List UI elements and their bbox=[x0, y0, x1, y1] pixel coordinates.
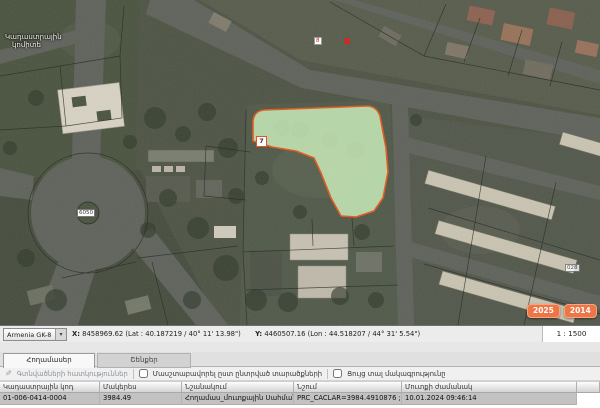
cadastre-map-app: Կադաստրային կոմիտե 7 8 6050 028 2025 201… bbox=[0, 0, 600, 408]
header-area[interactable]: Մակերես bbox=[100, 381, 182, 393]
show-labels-checkbox[interactable] bbox=[333, 369, 342, 378]
map-scale-input[interactable]: 1 : 1500 bbox=[542, 326, 600, 342]
imagery-year-buttons: 2025 2014 Այլ bbox=[527, 304, 600, 318]
projection-select-value: Armenia GK-8 bbox=[4, 331, 55, 339]
zoom-to-selected-label: Մասշտաբավորել ըստ ընտրված տարածքների bbox=[153, 370, 322, 378]
projection-select[interactable]: Armenia GK-8 ▾ bbox=[3, 328, 67, 341]
satellite-map-canvas bbox=[0, 0, 600, 325]
header-designation[interactable]: Նշանակում bbox=[182, 381, 294, 393]
map-watermark: Կադաստրային կոմիտե bbox=[5, 33, 62, 49]
grid-header-row: Կադաստրային կոդ Մակերես Նշանակում Նշում … bbox=[0, 381, 600, 393]
map-label-building-8: 8 bbox=[314, 37, 322, 45]
tab-buildings[interactable]: Շենքեր bbox=[97, 353, 191, 368]
found-properties-link[interactable]: Գտնվածների հատկություններ bbox=[17, 370, 128, 378]
chevron-down-icon: ▾ bbox=[55, 329, 66, 340]
header-note[interactable]: Նշում bbox=[294, 381, 402, 393]
cell-designation[interactable]: Հողամաս_մուտքային Սահման bbox=[182, 393, 294, 405]
x-coordinate-label: X: bbox=[72, 330, 80, 338]
watermark-line1: Կադաստրային bbox=[5, 33, 62, 41]
satellite-grain-texture bbox=[0, 0, 600, 325]
header-filler bbox=[577, 381, 600, 393]
parcel-number-badge[interactable]: 7 bbox=[256, 136, 267, 147]
cell-note[interactable]: PRC_CACLAR=3984.4910876 ; PR... bbox=[294, 393, 402, 405]
cell-area[interactable]: 3984.49 bbox=[100, 393, 182, 405]
tab-parcels[interactable]: Հողամասեր bbox=[3, 353, 95, 368]
zoom-to-selected-checkbox[interactable] bbox=[139, 369, 148, 378]
y-coordinate-label: Y: bbox=[255, 330, 262, 338]
map-label-028: 028 bbox=[565, 264, 580, 272]
toolbar-divider bbox=[133, 369, 134, 379]
table-row[interactable]: 01-006-0414-0004 3984.49 Հողամաս_մուտքայ… bbox=[0, 393, 600, 405]
results-toolbar: ✎ Գտնվածների հատկություններ Մասշտաբավորե… bbox=[0, 367, 600, 381]
map-label-6050: 6050 bbox=[77, 209, 95, 217]
x-coordinate-value: 8458969.62 (Lat : 40.187219 / 40° 11' 13… bbox=[82, 330, 241, 338]
imagery-year-2014-button[interactable]: 2014 bbox=[564, 304, 597, 318]
panel-spacer bbox=[0, 342, 600, 352]
cell-entry-time[interactable]: 10.01.2024 09:46:14 bbox=[402, 393, 577, 405]
results-grid: Կադաստրային կոդ Մակերես Նշանակում Նշում … bbox=[0, 381, 600, 405]
cursor-coordinates: X: 8458969.62 (Lat : 40.187219 / 40° 11'… bbox=[72, 326, 420, 342]
imagery-year-2025-button[interactable]: 2025 bbox=[527, 304, 560, 318]
pencil-icon: ✎ bbox=[5, 369, 12, 378]
show-labels-label: Ցույց տալ մակագրությունը bbox=[347, 370, 446, 378]
results-tab-bar: Հողամասեր Շենքեր bbox=[0, 352, 600, 367]
satellite-map-viewport[interactable]: Կադաստրային կոմիտե 7 8 6050 028 2025 201… bbox=[0, 0, 600, 326]
cell-filler bbox=[577, 393, 600, 405]
map-status-bar: Armenia GK-8 ▾ X: 8458969.62 (Lat : 40.1… bbox=[0, 326, 600, 343]
watermark-line2: կոմիտե bbox=[5, 41, 62, 49]
header-entry-time[interactable]: Մուտքի ժամանակ bbox=[402, 381, 577, 393]
y-coordinate-value: 4460507.16 (Lon : 44.518207 / 44° 31' 5.… bbox=[264, 330, 420, 338]
toolbar-divider bbox=[327, 369, 328, 379]
cell-cadastral-code[interactable]: 01-006-0414-0004 bbox=[0, 393, 100, 405]
header-cadastral-code[interactable]: Կադաստրային կոդ bbox=[0, 381, 100, 393]
